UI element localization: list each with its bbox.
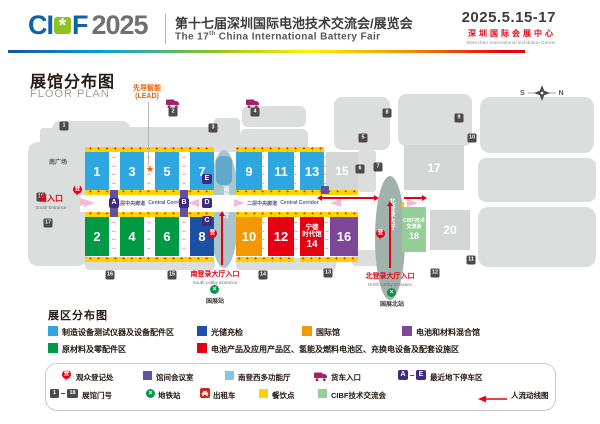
zone-swatch-raw-materials (48, 343, 58, 353)
gate-6: 6 (356, 165, 365, 174)
flow-arrow-up (221, 216, 223, 265)
corridor-label-cn: 二层中央廊道 (115, 200, 145, 207)
hall-number: 13 (305, 164, 319, 179)
building-outline (478, 207, 596, 267)
logo-battery-icon: * (54, 17, 71, 34)
parking-badge-c: C (202, 216, 212, 226)
fair-title-en: The 17th China International Battery Fai… (175, 31, 380, 42)
parking-badge-b: B (179, 198, 189, 208)
south-plaza-label: 南广场 (28, 157, 88, 166)
compass: S N (520, 85, 564, 101)
logo-text-f: F (72, 10, 88, 41)
hall-number: 3 (128, 164, 135, 179)
compass-south-label: S (520, 90, 525, 97)
corridor-label-cn: 二层中央廊道 (247, 200, 277, 207)
registration-pin-icon: 登 (376, 229, 385, 238)
north-lobby-entrance-label: 北登录大厅入口 North Lobby Entrance (350, 271, 430, 287)
flow-arrow-pink (80, 198, 91, 206)
taxi-icon (200, 388, 210, 398)
zone-label-solar-storage: 光储充检 (211, 327, 243, 338)
dining-swatch (259, 389, 268, 398)
gate-8: 8 (383, 109, 392, 118)
hall-16: 16 (330, 217, 358, 256)
hall-18-cibf-forum: CIBF技术 交流会 18 (402, 207, 426, 252)
hall-number: 14 (306, 240, 317, 250)
range-dash: – (410, 371, 414, 380)
flow-arrow-horizontal (322, 197, 374, 199)
cibf-forum-swatch (318, 389, 327, 398)
hall-number: 15 (335, 164, 348, 178)
cibf-floorplan-page: CI * F 2025 第十七届深圳国际电池技术交流会/展览会 The 17th… (0, 0, 600, 424)
hall-number: 6 (163, 229, 170, 244)
venue-name-en: Shenzhen International Exhibition Center (462, 40, 556, 45)
gate-9: 9 (455, 114, 464, 123)
lead-callout-line (148, 102, 149, 165)
flow-arrow-pink (234, 199, 245, 207)
legend-label-meeting-room: 馆间会议室 (156, 372, 194, 383)
venue-name-cn: 深圳国际会展中心 (462, 28, 556, 39)
compass-north-label: N (559, 90, 564, 97)
event-dates: 2025.5.15-17 (462, 9, 556, 26)
south-entrance-label: 南入口 South Entrance (30, 193, 72, 210)
zone-label-raw-materials: 原材料及零配件区 (62, 344, 126, 355)
hall-number: 4 (128, 229, 135, 244)
legend-label-multifunction-hall: 南登西多功能厅 (238, 372, 291, 383)
hall-number: 17 (427, 161, 440, 175)
legend-label-taxi: 出租车 (213, 390, 236, 401)
meeting-room-bar (321, 186, 329, 194)
corridor-label: 二层中央廊道 Central Corridor (238, 200, 328, 207)
fair-title-en-rest: China International Battery Fair (216, 31, 381, 42)
hall-3: 3 (120, 152, 144, 190)
hall-5: 5 (155, 152, 179, 190)
zone-label-manufacturing: 制造设备测试仪器及设备配件区 (62, 327, 174, 338)
metro-station-north-label: 国展北站 (368, 299, 416, 308)
gate-17: 17 (44, 219, 53, 228)
building-outline (478, 158, 596, 202)
dining-strip: + + + + + + + + + + + + + + + + + + + + … (300, 257, 358, 262)
zone-label-battery-products: 电池产品及应用产品区、氢能及燃料电池区、充换电设备及配套设施区 (211, 344, 459, 355)
multifunction-hall-patch (216, 156, 232, 185)
hall-2: 2 (85, 217, 109, 256)
south-lobby-entrance-label: 南登录大厅入口 South Lobby Entrance (175, 269, 255, 285)
zone-swatch-battery-materials-mixed (402, 326, 412, 336)
legend-label-metro: 地铁站 (158, 390, 181, 401)
flow-arrow-pink (188, 199, 199, 207)
flow-arrows-strip: ↔ ↔ ↔ ↔ (144, 218, 154, 255)
pin-glyph: 登 (62, 370, 71, 379)
dining-strip: + + + + + + + + + + + + + + + + + + + + … (85, 257, 214, 262)
zone-label-international: 国际馆 (316, 327, 340, 338)
hall-11: 11 (268, 152, 294, 190)
hall-4: 4 (120, 217, 144, 256)
parking-badge-d: D (202, 198, 212, 208)
flow-arrows-strip: ↔ ↔ ↔ ↔ (109, 153, 119, 189)
event-info: 2025.5.15-17 深圳国际会展中心 Shenzhen Internati… (462, 9, 556, 45)
truck-icon (246, 96, 260, 114)
legend-label-parking: 最近地下停车区 (430, 372, 483, 383)
registration-pin-icon: 登 (62, 370, 71, 379)
hall-number: 11 (274, 164, 288, 179)
south-entrance-en: South Entrance (30, 205, 72, 210)
south-lobby-entrance-en: South Lobby Entrance (175, 280, 255, 285)
metro-icon: × (210, 285, 219, 294)
hall-10: 10 (236, 217, 262, 256)
logo-year: 2025 (92, 10, 148, 41)
legend-label-registration: 观众登记处 (76, 372, 114, 383)
flow-arrows-strip: ↔ ↔ ↔ ↔ (179, 218, 189, 255)
metro-icon: × (146, 389, 155, 398)
zone-legend-title: 展区分布图 (48, 307, 108, 323)
hall-9: 9 (236, 152, 262, 190)
zone-label-battery-materials-mixed: 电池和材料混合馆 (416, 327, 480, 338)
gate-13: 13 (324, 269, 333, 278)
lead-label-en: (LEAD) (124, 93, 170, 101)
gate-14: 14 (259, 271, 268, 280)
header-divider (165, 14, 166, 44)
logo-text-ci: CI (28, 10, 53, 41)
flow-arrow-pink (330, 199, 341, 207)
flow-arrows-strip: ↔ ↔ ↔ ↔ (179, 153, 189, 189)
hall-12: 12 (268, 217, 294, 256)
multifunction-hall-swatch (225, 371, 234, 380)
gate-12: 12 (431, 269, 440, 278)
north-lobby-entrance-en: North Lobby Entrance (350, 282, 430, 287)
hall-number: 9 (245, 164, 252, 179)
lead-label-cn: 先导智能 (124, 85, 170, 93)
building-outline (480, 97, 594, 153)
hall-number: 18 (409, 231, 419, 241)
hall-7: 7 (190, 152, 214, 190)
lead-exhibitor-callout: 先导智能 (LEAD) (124, 85, 170, 101)
building-outline (214, 118, 240, 150)
registration-pin-icon: 登 (208, 229, 217, 238)
cibf-logo: CI * F 2025 (28, 10, 148, 41)
hall-number: 8 (198, 229, 205, 244)
fair-title-en-prefix: The 17 (175, 31, 209, 42)
metro-icon: × (387, 288, 396, 297)
gate-3: 3 (209, 124, 218, 133)
floorplan-title-en: FLOOR PLAN (30, 88, 110, 100)
hall-number: 5 (163, 164, 170, 179)
hall-17: 17 (404, 145, 464, 190)
header-gradient-bar (8, 50, 525, 53)
zone-swatch-battery-products (197, 343, 207, 353)
hall-20: 20 (430, 210, 470, 250)
south-lobby-entrance-cn: 南登录大厅入口 (191, 271, 240, 278)
hall-number: 12 (274, 229, 288, 244)
hall-number: 2 (93, 229, 100, 244)
hall-number: 1 (93, 164, 100, 179)
legend-label-gate-numbers: 展馆门号 (82, 390, 112, 401)
fair-title-cn: 第十七届深圳国际电池技术交流会/展览会 (175, 13, 413, 32)
flow-arrows-strip: ↔ ↔ ↔ ↔ (109, 218, 119, 255)
hall-label: 时代馆 (302, 231, 322, 239)
registration-pin-icon: 登 (73, 185, 82, 194)
meeting-room-swatch (143, 371, 152, 380)
south-entrance-cn: 南入口 (39, 194, 63, 203)
gate-1: 1 (60, 122, 69, 131)
dining-strip: + + + + + + + + + + + + + + + + + + + + … (236, 257, 294, 262)
flow-arrow-horizontal (404, 197, 422, 199)
hall-number: 10 (242, 229, 256, 244)
metro-station-south-label: 国展站 (193, 296, 237, 305)
flow-arrow-pink (407, 199, 418, 207)
zone-swatch-international (302, 326, 312, 336)
gate-18-legend: 18 (67, 389, 78, 398)
parking-badge-a: A (109, 198, 119, 208)
gate-5: 5 (359, 134, 368, 143)
gate-1-legend: 1 (50, 389, 59, 398)
hall-label: 交流会 (406, 224, 421, 230)
gate-11: 11 (467, 256, 476, 265)
compass-rose-icon (527, 85, 557, 101)
hall-15: 15 (326, 152, 358, 190)
hall-label: 宁德 (306, 224, 319, 232)
gate-7: 7 (374, 163, 383, 172)
hall-number: 16 (337, 229, 351, 244)
flow-line-arrow-icon (478, 390, 508, 408)
legend-label-truck-entrance: 货车入口 (331, 372, 361, 383)
gate-10: 10 (468, 134, 477, 143)
flow-arrow-up (389, 206, 391, 268)
legend-label-dining: 餐饮点 (272, 390, 295, 401)
parking-badge-a-legend: A (398, 370, 408, 380)
hall-13: 13 (300, 152, 324, 190)
zone-swatch-solar-storage (197, 326, 207, 336)
gate-16: 16 (106, 271, 115, 280)
truck-icon (314, 369, 328, 387)
lead-star-icon: ★ (146, 165, 154, 174)
zone-swatch-manufacturing (48, 326, 58, 336)
hall-6: 6 (155, 217, 179, 256)
hall-14-catl: 宁德 时代馆 14 (300, 217, 324, 256)
parking-badge-e-legend: E (416, 370, 426, 380)
north-lobby-entrance-cn: 北登录大厅入口 (366, 273, 415, 280)
parking-badge-e: E (202, 174, 212, 184)
range-dash: – (61, 389, 65, 398)
hall-number: 20 (443, 223, 456, 237)
hall-1: 1 (85, 152, 109, 190)
corridor-label-en: Central Corridor (280, 200, 319, 207)
legend-label-cibf-forum: CIBF技术交流会 (331, 390, 386, 401)
legend-label-flow-line: 人流动线图 (511, 390, 549, 401)
